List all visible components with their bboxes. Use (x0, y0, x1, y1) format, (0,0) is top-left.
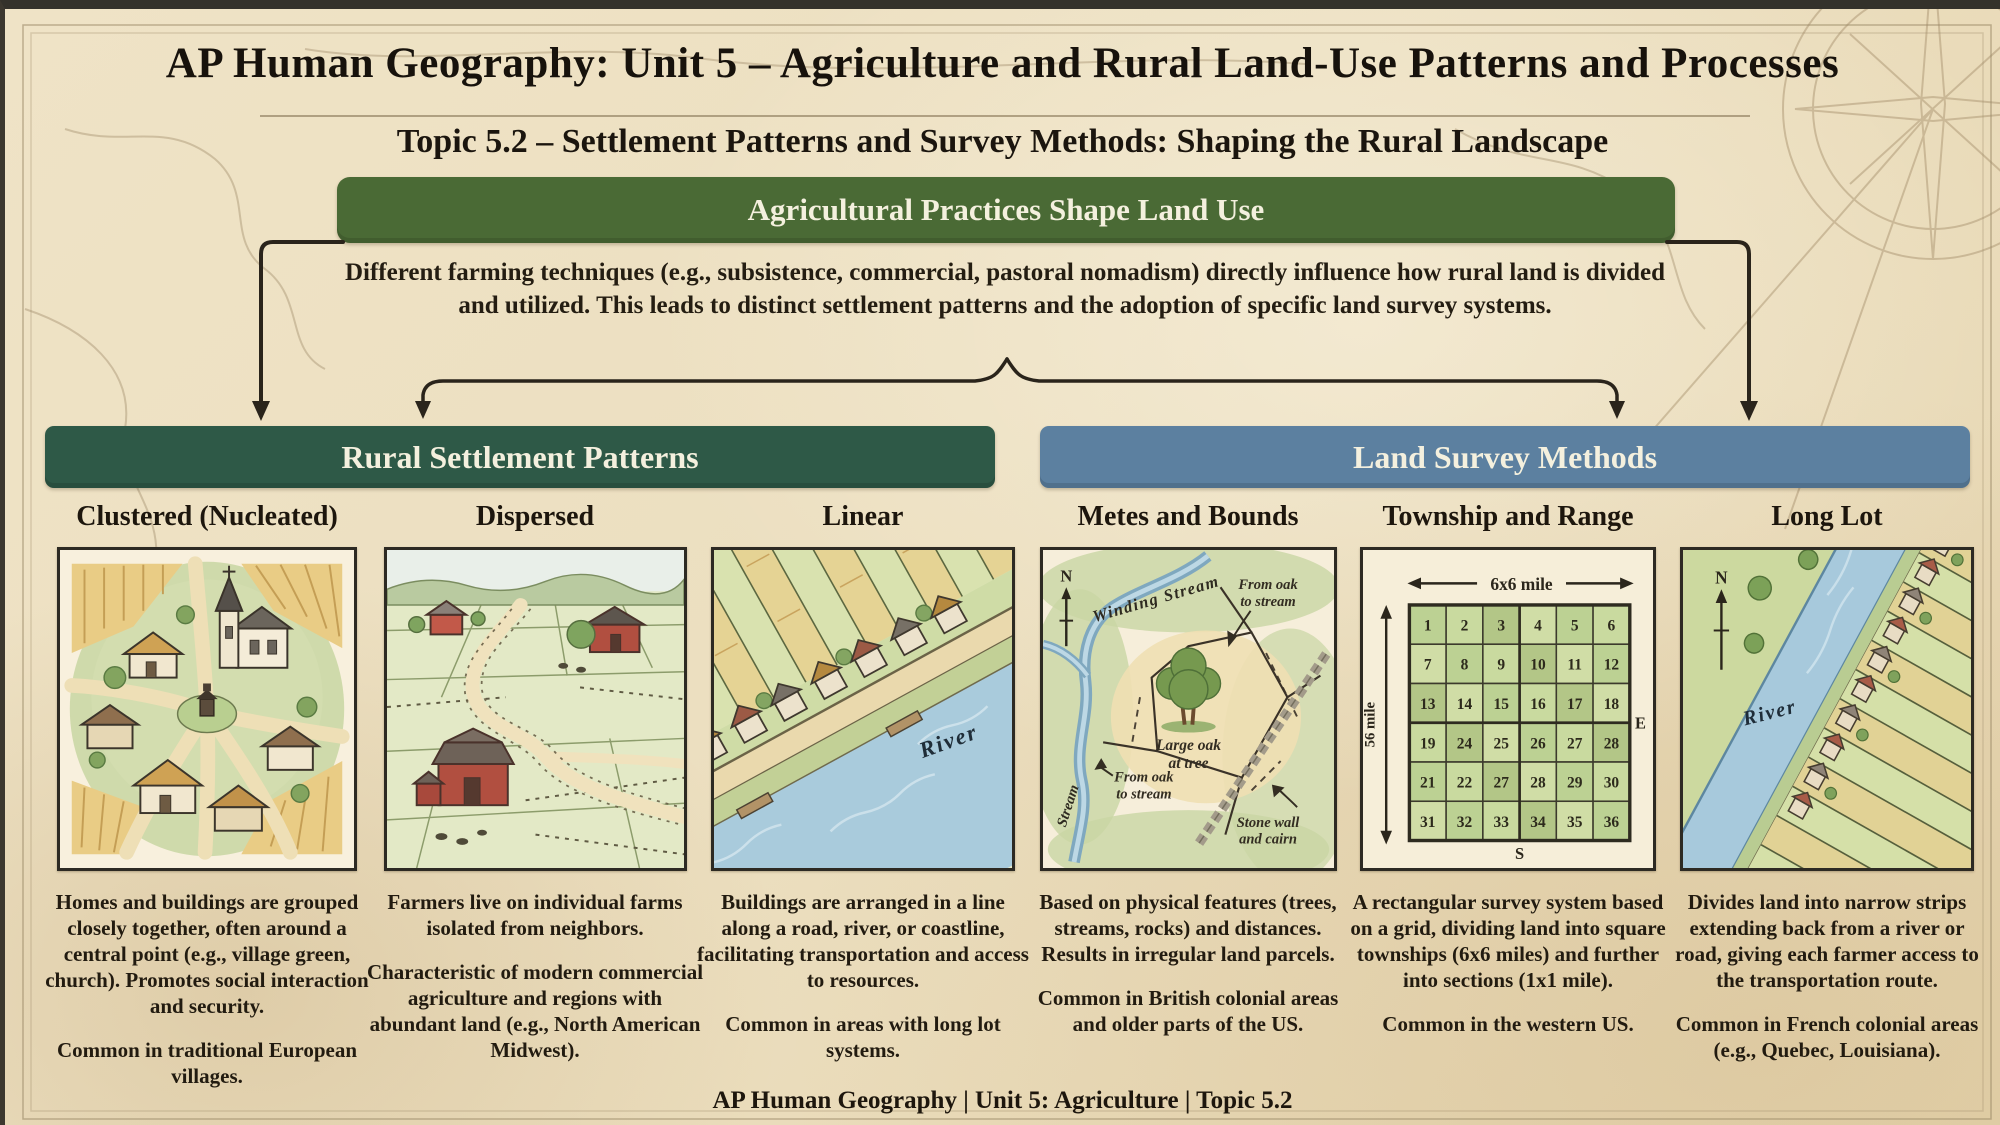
township-section-number: 18 (1604, 696, 1620, 713)
oak-label-1: Large oak (1155, 737, 1221, 754)
township-section-number: 27 (1567, 735, 1583, 752)
township-section-number: 1 (1424, 617, 1432, 634)
text-dispersed: Farmers live on individual farms isolate… (365, 889, 705, 1063)
township-section-number: 35 (1567, 814, 1583, 831)
section-banner-settlement: Rural Settlement Patterns (45, 426, 995, 488)
township-section-number: 34 (1530, 814, 1546, 831)
clustered-illustration (60, 550, 354, 868)
poster: AP Human Geography: Unit 5 – Agriculture… (0, 0, 2000, 1125)
township-section-number: 22 (1457, 774, 1473, 791)
township-section-number: 10 (1530, 657, 1546, 674)
text-clustered: Homes and buildings are grouped closely … (35, 889, 379, 1089)
footer-credit: AP Human Geography | Unit 5: Agriculture… (5, 1087, 2000, 1115)
township-section-number: 26 (1530, 735, 1546, 752)
township-section-number: 13 (1420, 696, 1436, 713)
township-section-number: 7 (1424, 657, 1432, 674)
metes-paragraph-1: Based on physical features (trees, strea… (1027, 889, 1349, 967)
township-section-number: 11 (1567, 657, 1582, 674)
heading-linear: Linear (695, 501, 1031, 533)
township-section-number: 15 (1494, 696, 1510, 713)
township-section-number: 5 (1571, 617, 1579, 634)
clustered-paragraph-2: Common in traditional European villages. (35, 1037, 379, 1089)
text-metes: Based on physical features (trees, strea… (1027, 889, 1349, 1037)
note-left-2: to stream (1116, 786, 1171, 802)
linear-illustration: River (714, 550, 1012, 868)
township-paragraph-1: A rectangular survey system based on a g… (1350, 889, 1666, 993)
township-side-scale: 56 mile (1363, 702, 1379, 748)
dispersed-paragraph-1: Farmers live on individual farms isolate… (365, 889, 705, 941)
longlot-illustration: N River (1683, 550, 1971, 868)
township-section-number: 36 (1604, 814, 1620, 831)
township-section-number: 2 (1461, 617, 1469, 634)
metes-paragraph-2: Common in British colonial areas and old… (1027, 985, 1349, 1037)
panel-dispersed (384, 547, 687, 871)
heading-dispersed: Dispersed (365, 501, 705, 533)
clustered-paragraph-1: Homes and buildings are grouped closely … (35, 889, 379, 1019)
township-section-number: 29 (1567, 774, 1583, 791)
township-section-number: 3 (1497, 617, 1505, 634)
township-section-number: 30 (1604, 774, 1620, 791)
text-township: A rectangular survey system based on a g… (1350, 889, 1666, 1037)
dispersed-illustration (387, 550, 684, 868)
metes-illustration: Winding Stream Stream N (1043, 550, 1334, 868)
township-section-number: 17 (1567, 696, 1583, 713)
township-section-number: 8 (1461, 657, 1469, 674)
township-section-number: 21 (1420, 774, 1435, 791)
longlot-paragraph-1: Divides land into narrow strips extendin… (1667, 889, 1987, 993)
longlot-compass-n: N (1715, 567, 1728, 587)
wall-label-2: and cairn (1239, 831, 1297, 847)
township-section-number: 28 (1530, 774, 1546, 791)
linear-paragraph-2: Common in areas with long lot systems. (695, 1011, 1031, 1063)
panel-township: 6x6 mile 56 mile 12345678910111213141516… (1360, 547, 1656, 871)
township-illustration: 6x6 mile 56 mile 12345678910111213141516… (1363, 550, 1653, 868)
longlot-paragraph-2: Common in French colonial areas (e.g., Q… (1667, 1011, 1987, 1063)
heading-township: Township and Range (1350, 501, 1666, 533)
note-top-1: From oak (1237, 577, 1298, 593)
township-section-number: 16 (1530, 696, 1546, 713)
dispersed-paragraph-2: Characteristic of modern commercial agri… (365, 959, 705, 1063)
township-section-number: 28 (1604, 735, 1620, 752)
panel-longlot: N River (1680, 547, 1974, 871)
oak-label-2: at tree (1168, 755, 1208, 772)
text-linear: Buildings are arranged in a line along a… (695, 889, 1031, 1063)
township-section-number: 4 (1534, 617, 1542, 634)
panel-clustered (57, 547, 357, 871)
metes-compass-n: N (1060, 566, 1072, 585)
township-section-number: 14 (1457, 696, 1473, 713)
text-longlot: Divides land into narrow strips extendin… (1667, 889, 1987, 1063)
township-section-number: 9 (1497, 657, 1505, 674)
township-paragraph-2: Common in the western US. (1350, 1011, 1666, 1037)
township-section-number: 19 (1420, 735, 1436, 752)
panel-linear: River (711, 547, 1015, 871)
township-section-number: 24 (1457, 735, 1473, 752)
heading-longlot: Long Lot (1667, 501, 1987, 533)
township-section-number: 25 (1494, 735, 1510, 752)
heading-metes: Metes and Bounds (1027, 501, 1349, 533)
township-section-number: 31 (1420, 814, 1435, 831)
township-east: E (1635, 714, 1646, 733)
township-section-number: 12 (1604, 657, 1620, 674)
panel-metes: Winding Stream Stream N (1040, 547, 1337, 871)
township-top-scale: 6x6 mile (1490, 574, 1552, 594)
note-left-1: From oak (1113, 770, 1174, 786)
township-section-number: 32 (1457, 814, 1473, 831)
heading-clustered: Clustered (Nucleated) (35, 501, 379, 533)
township-south: S (1515, 844, 1524, 863)
section-banner-survey: Land Survey Methods (1040, 426, 1970, 488)
township-section-number: 6 (1608, 617, 1616, 634)
township-section-number: 33 (1494, 814, 1510, 831)
linear-paragraph-1: Buildings are arranged in a line along a… (695, 889, 1031, 993)
township-section-number: 27 (1494, 774, 1510, 791)
wall-label-1: Stone wall (1237, 815, 1301, 831)
note-top-2: to stream (1240, 594, 1295, 610)
